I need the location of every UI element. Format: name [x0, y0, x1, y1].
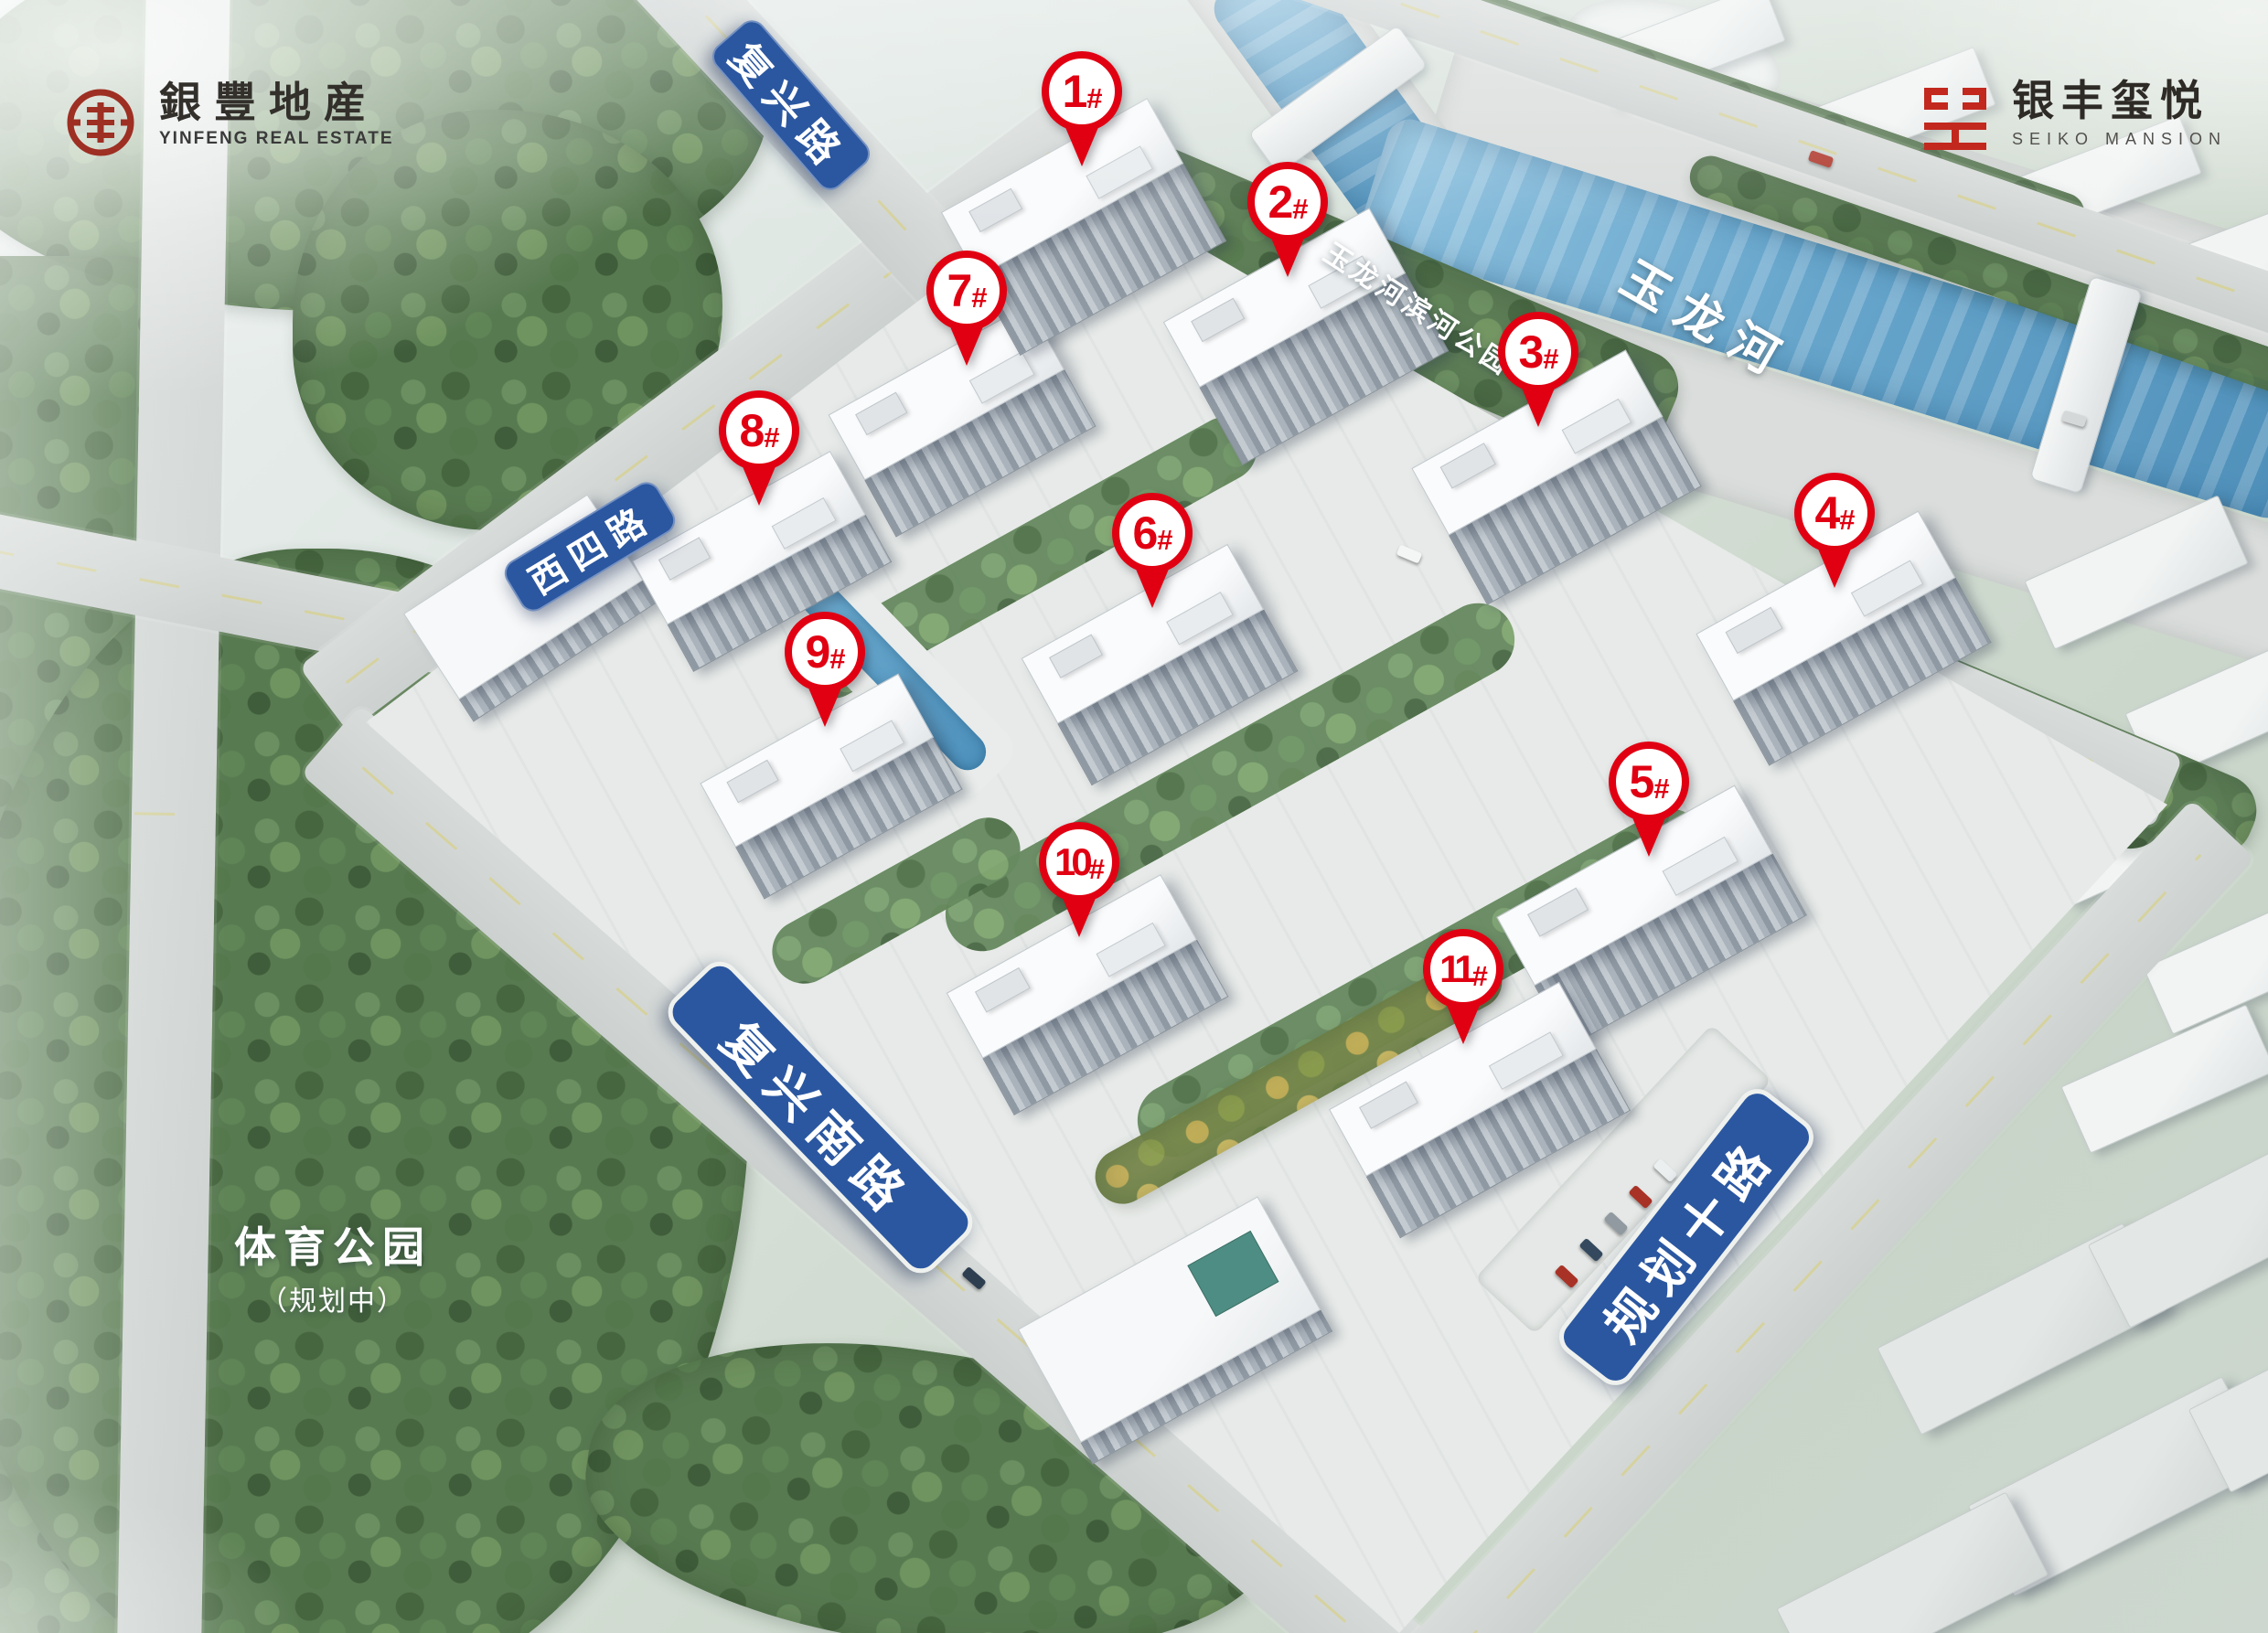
- marker-balloon: 9#: [785, 612, 865, 692]
- marker-balloon: 8#: [719, 390, 799, 471]
- building-marker-6[interactable]: 6#: [1110, 493, 1194, 610]
- building-marker-7[interactable]: 7#: [925, 251, 1009, 368]
- marker-hash: #: [829, 645, 845, 673]
- sports-court: [1187, 1231, 1278, 1317]
- marker-hash: #: [1472, 962, 1488, 990]
- marker-balloon: 6#: [1112, 493, 1193, 573]
- marker-balloon: 5#: [1609, 742, 1689, 822]
- building-marker-4[interactable]: 4#: [1792, 473, 1877, 590]
- building-marker-5[interactable]: 5#: [1607, 742, 1691, 859]
- marker-balloon: 4#: [1794, 473, 1875, 553]
- marker-hash: #: [1292, 195, 1308, 223]
- marker-hash: #: [1157, 526, 1172, 554]
- building-marker-2[interactable]: 2#: [1246, 162, 1330, 279]
- marker-number: 10: [1054, 843, 1088, 881]
- marker-number: 2: [1268, 179, 1291, 225]
- seiko-mansion-mark-icon: [1919, 82, 1992, 155]
- yinfeng-seal-icon: [64, 86, 137, 159]
- marker-balloon: 7#: [926, 251, 1007, 331]
- project-name-en: SEIKO MANSION: [2012, 131, 2227, 147]
- marker-number: 11: [1439, 950, 1471, 988]
- building-marker-8[interactable]: 8#: [717, 390, 801, 507]
- marker-balloon: 11#: [1423, 929, 1503, 1009]
- marker-hash: #: [764, 423, 779, 452]
- marker-hash: #: [1839, 506, 1855, 534]
- marker-hash: #: [1543, 345, 1558, 373]
- marker-hash: #: [1086, 84, 1102, 112]
- sports-park-label: 体育公园: [234, 1214, 432, 1275]
- building-marker-3[interactable]: 3#: [1496, 312, 1580, 429]
- marker-hash: #: [971, 283, 987, 312]
- developer-name-en: YINFENG REAL ESTATE: [159, 130, 394, 147]
- marker-number: 4: [1814, 490, 1838, 536]
- warehouse-block: [1776, 1492, 2049, 1633]
- marker-balloon: 2#: [1247, 162, 1328, 242]
- developer-name-cn: 銀豐地産: [159, 82, 394, 124]
- developer-logo-text: 銀豐地産 YINFENG REAL ESTATE: [159, 82, 394, 147]
- marker-number: 5: [1629, 759, 1653, 805]
- building-marker-1[interactable]: 1#: [1040, 51, 1124, 168]
- project-name-cn: 银丰玺悦: [2012, 80, 2227, 123]
- marker-hash: #: [1653, 774, 1669, 803]
- marker-number: 6: [1132, 510, 1156, 556]
- marker-hash: #: [1089, 855, 1105, 883]
- marker-number: 8: [739, 408, 763, 454]
- marker-number: 7: [947, 268, 970, 314]
- marker-balloon: 1#: [1042, 51, 1122, 132]
- marker-balloon: 10#: [1039, 822, 1119, 902]
- marker-number: 3: [1518, 329, 1542, 375]
- developer-logo: 銀豐地産 YINFENG REAL ESTATE: [64, 82, 430, 165]
- building-marker-9[interactable]: 9#: [783, 612, 867, 729]
- aerial-masterplan-render: 复兴路 西四路 复兴南路 规划十路 玉龙河 玉龙河滨河公园 体育公园 （规划中）…: [0, 0, 2268, 1633]
- project-logo: 银丰玺悦 SEIKO MANSION: [1919, 80, 2248, 163]
- project-logo-text: 银丰玺悦 SEIKO MANSION: [2012, 80, 2227, 147]
- building-marker-11[interactable]: 11#: [1421, 929, 1505, 1046]
- sports-park-status-label: （规划中）: [260, 1278, 406, 1318]
- marker-balloon: 3#: [1498, 312, 1578, 392]
- marker-number: 1: [1062, 69, 1086, 114]
- building-marker-10[interactable]: 10#: [1037, 822, 1121, 939]
- marker-number: 9: [805, 629, 829, 675]
